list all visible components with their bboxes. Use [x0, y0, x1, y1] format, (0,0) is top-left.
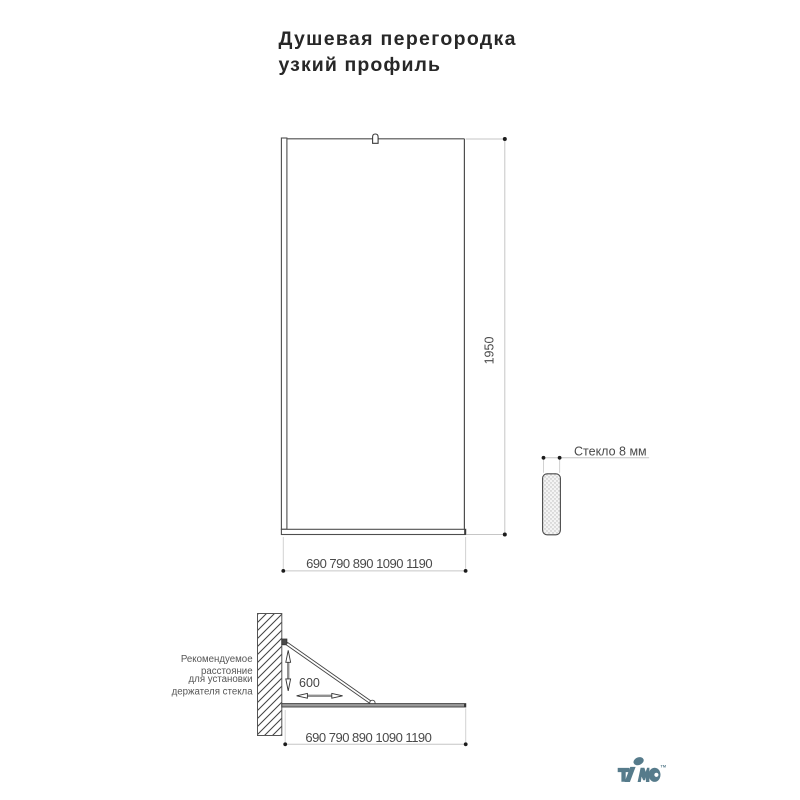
svg-text:Рекомендуемое: Рекомендуемое	[181, 654, 253, 665]
svg-text:690 790 890 1090 1190: 690 790 890 1090 1190	[306, 556, 433, 571]
svg-text:Душевая перегородка: Душевая перегородка	[279, 28, 516, 50]
svg-text:Стекло 8 мм: Стекло 8 мм	[574, 444, 647, 458]
svg-text:для установки: для установки	[189, 674, 253, 685]
svg-text:узкий профиль: узкий профиль	[279, 54, 441, 76]
svg-text:690 790 890 1090 1190: 690 790 890 1090 1190	[305, 730, 432, 745]
svg-text:600: 600	[299, 676, 320, 690]
svg-text:1950: 1950	[483, 337, 497, 365]
svg-text:держателя стекла: держателя стекла	[172, 686, 254, 697]
svg-text:TM: TM	[661, 764, 666, 768]
